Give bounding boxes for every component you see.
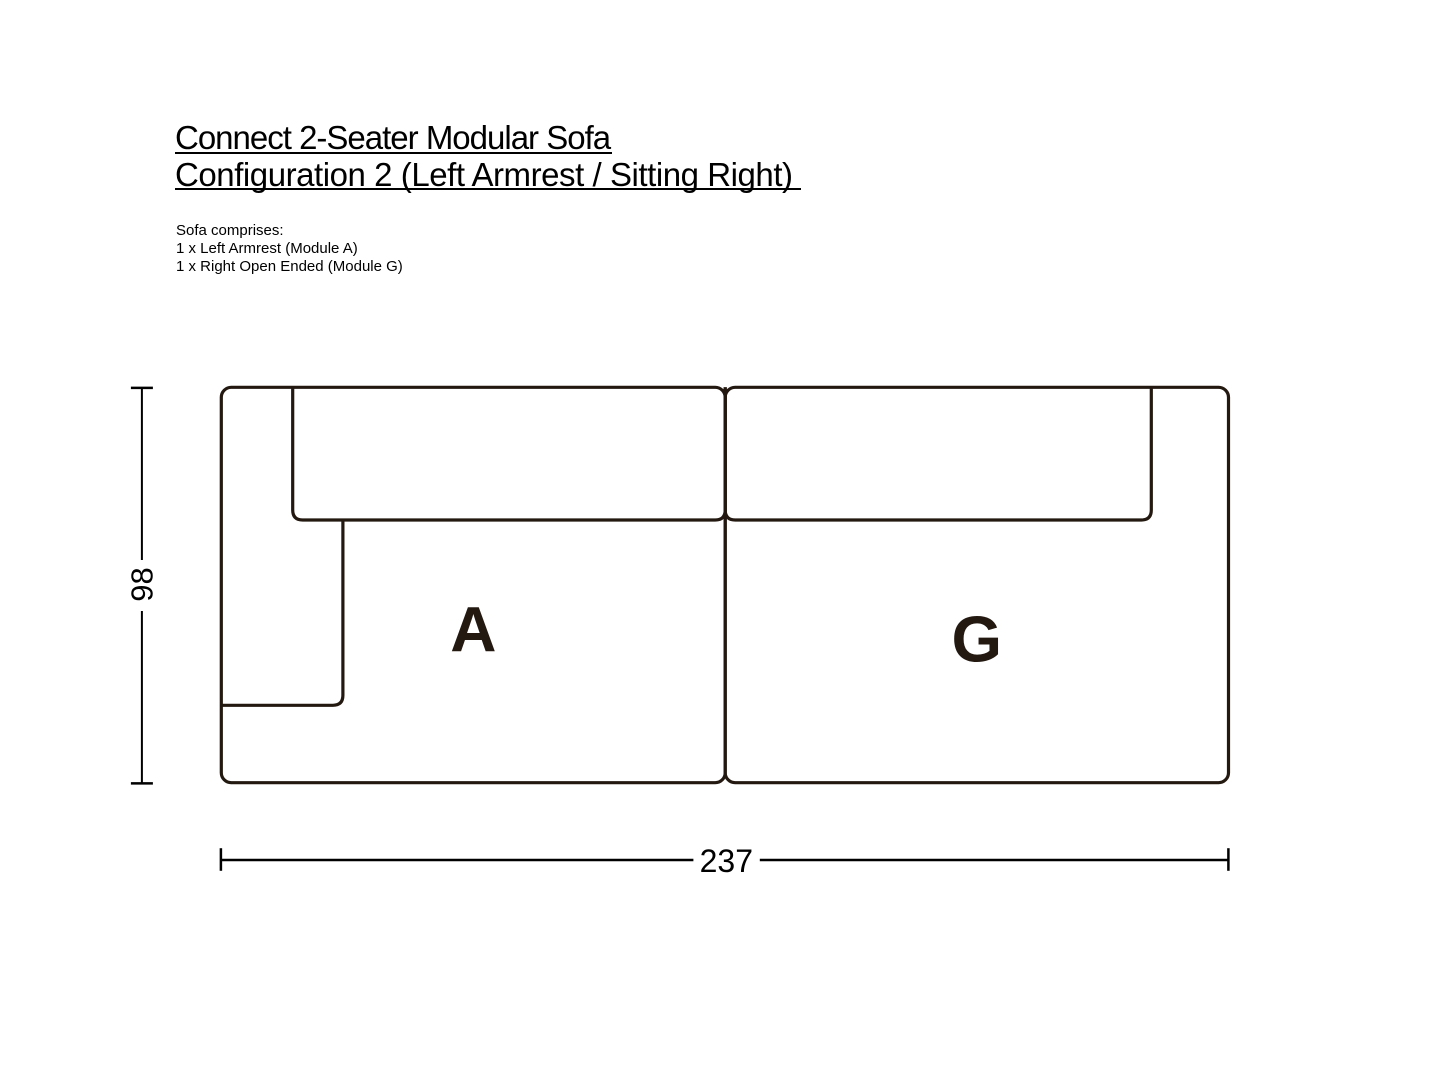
svg-text:A: A bbox=[450, 594, 496, 666]
svg-text:98: 98 bbox=[125, 567, 160, 601]
svg-text:237: 237 bbox=[700, 843, 753, 879]
svg-text:G: G bbox=[952, 603, 1003, 676]
